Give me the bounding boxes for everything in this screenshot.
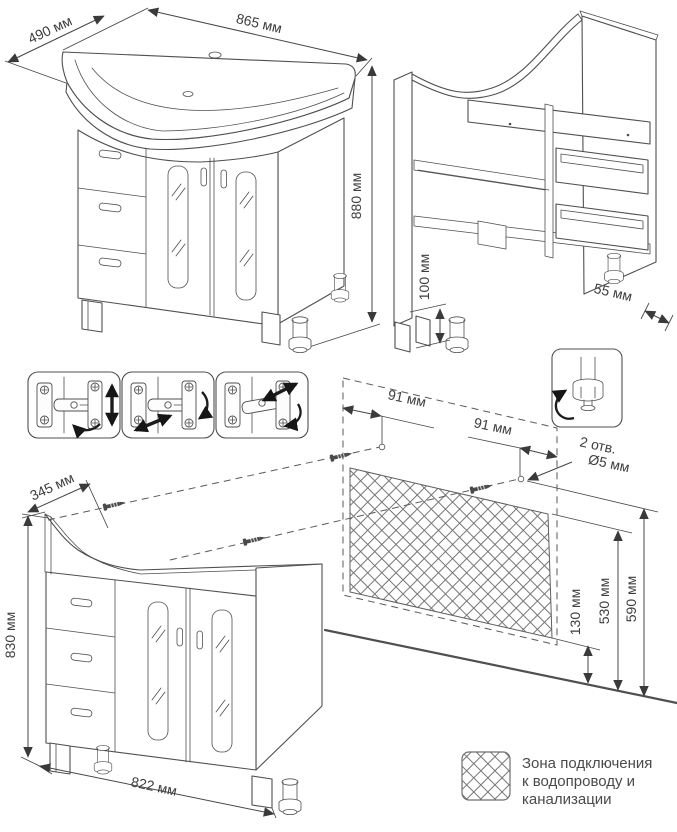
- siphon-cutout: [478, 221, 506, 249]
- dim-holes-height-label: 590 мм: [623, 576, 639, 623]
- adjustable-foot-icon: [446, 317, 468, 353]
- adjustable-foot-icon: [289, 317, 311, 353]
- view-assembled-vanity: 490 мм 865 мм 880 мм: [5, 8, 380, 353]
- dim-zone-top-label: 530 мм: [596, 578, 612, 625]
- view-carcass-rear: 100 мм 55 мм: [394, 11, 673, 353]
- dim-height-label: 880 мм: [348, 173, 364, 220]
- technical-drawing-vanity-cabinet: 490 мм 865 мм 880 мм: [0, 0, 677, 832]
- mounting-screw-icon: [469, 482, 493, 494]
- hinge-detail-lateral: [216, 372, 308, 438]
- foot-adjustment-detail: [552, 349, 622, 427]
- view-cabinet-body: 345 мм 830 мм 822 мм: [2, 469, 322, 818]
- dim-width-label: 865 мм: [235, 10, 284, 36]
- hinge-detail-depth: [122, 372, 214, 438]
- faucet-hole: [209, 52, 221, 58]
- rotate-arrow-icon: [556, 391, 574, 419]
- hinge-adjustment-details: [28, 372, 308, 438]
- mounting-hole: [379, 444, 385, 450]
- hinge-detail-vertical: [28, 372, 120, 438]
- drawing-canvas: 490 мм 865 мм 880 мм: [0, 0, 677, 832]
- dim-zone-bottom-label: 130 мм: [567, 589, 583, 636]
- dim-leg-height-label: 100 мм: [416, 254, 432, 301]
- dim-hole-right-label: 91 мм: [472, 414, 513, 438]
- legend-line-2: к водопроводу и: [522, 773, 635, 790]
- dim-back-offset-label: 55 мм: [592, 280, 633, 304]
- mounting-hole: [518, 476, 524, 482]
- mounting-screw-icon: [329, 450, 353, 462]
- legend-line-1: Зона подключения: [522, 755, 652, 772]
- connection-zone-hatch: [350, 468, 552, 638]
- dim-top-depth-label: 345 мм: [27, 469, 76, 503]
- rotate-arrow-icon: [200, 392, 207, 418]
- dim-body-height-label: 830 мм: [2, 612, 18, 659]
- floor-line: [325, 630, 677, 703]
- legend-hatch-swatch: [462, 752, 510, 800]
- adjustable-foot-icon: [279, 779, 301, 815]
- mounting-screw-icon: [102, 499, 126, 511]
- holes-diameter-label: Ø5 мм: [587, 451, 631, 475]
- dim-body-width-label: 822 мм: [130, 773, 179, 798]
- shelf: [414, 160, 545, 190]
- legend: Зона подключения к водопроводу и канализ…: [462, 752, 652, 808]
- mounting-screw-icon: [242, 534, 266, 546]
- dim-hole-left-label: 91 мм: [386, 386, 427, 410]
- legend-line-3: канализации: [522, 791, 612, 808]
